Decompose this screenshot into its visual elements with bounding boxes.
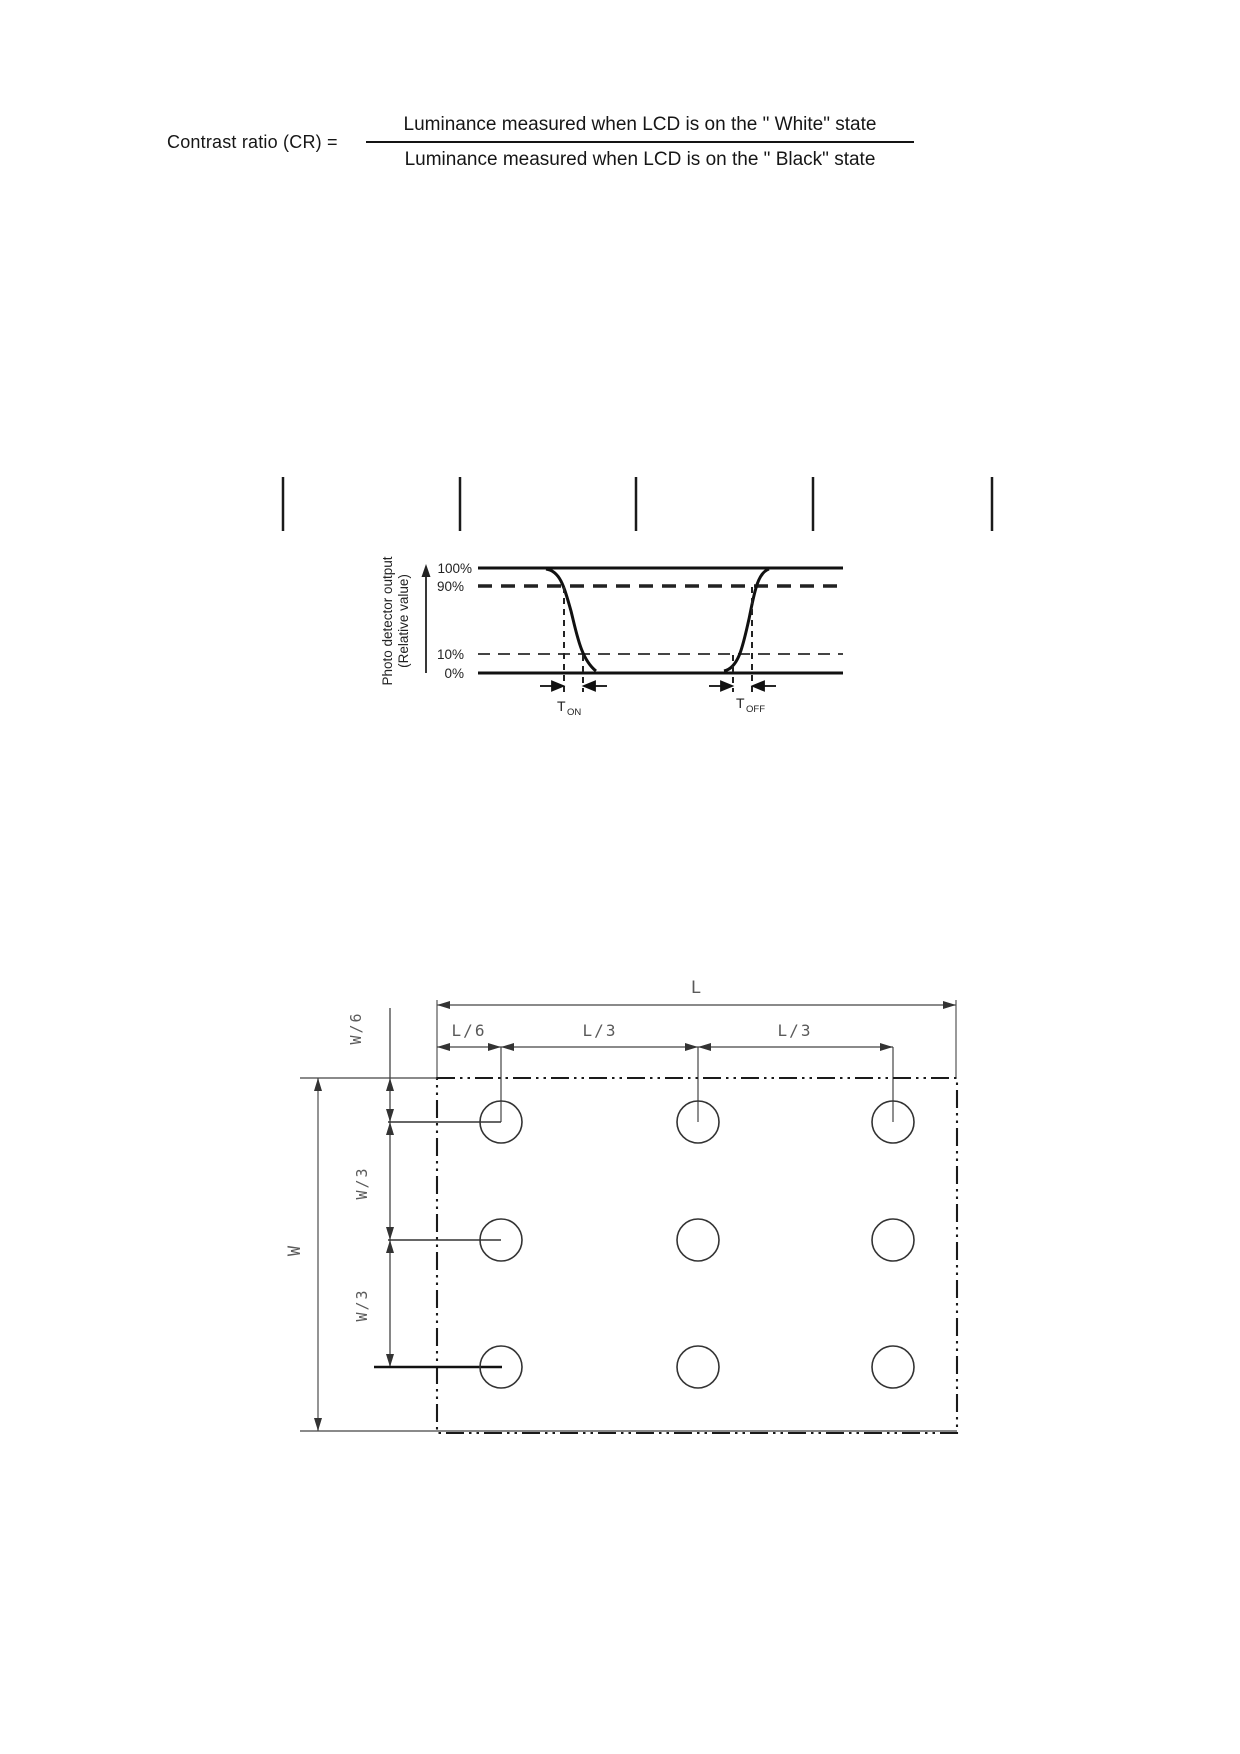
line-art-canvas: Photo detector output (Relative value) 1… [0, 0, 1240, 1754]
dim-label-L: L [691, 978, 703, 998]
seg-arrowhead-icon [437, 1043, 450, 1051]
dim-label-L3-left: L/3 [583, 1021, 618, 1040]
wseg-arrowhead-icon [386, 1078, 394, 1091]
seg-arrowhead-icon [880, 1043, 893, 1051]
measurement-point [872, 1219, 914, 1261]
document-page: Contrast ratio (CR) = Luminance measured… [0, 0, 1240, 1754]
t-off-label: T [736, 695, 745, 711]
t-on-left-arrowhead-icon [552, 682, 563, 691]
y-axis-label-line1: Photo detector output [380, 556, 395, 685]
t-on-right-arrowhead-icon [584, 682, 595, 691]
dim-W-top-arrowhead-icon [314, 1078, 322, 1091]
seg-arrowhead-icon [488, 1043, 501, 1051]
measurement-point [677, 1346, 719, 1388]
seg-arrowhead-icon [685, 1043, 698, 1051]
level-label-90: 90% [437, 579, 464, 594]
wseg-arrowhead-icon [386, 1109, 394, 1122]
measurement-points-grid [480, 1101, 914, 1388]
response-time-graph: Photo detector output (Relative value) 1… [380, 556, 843, 718]
dim-label-W3-upper: W/3 [353, 1166, 371, 1199]
wseg-arrowhead-icon [386, 1227, 394, 1240]
y-axis-label-line2: (Relative value) [396, 574, 411, 668]
dim-L-left-arrowhead-icon [437, 1001, 450, 1009]
y-axis-arrowhead-icon [422, 564, 431, 577]
level-label-10: 10% [437, 647, 464, 662]
dim-label-L6: L/6 [452, 1021, 487, 1040]
level-label-100: 100% [437, 561, 472, 576]
t-on-label: T [557, 698, 566, 714]
table-column-ticks [283, 477, 992, 531]
dim-label-W: W [285, 1244, 305, 1256]
t-off-right-arrowhead-icon [753, 682, 764, 691]
dim-L-right-arrowhead-icon [943, 1001, 956, 1009]
seg-arrowhead-icon [698, 1043, 711, 1051]
dim-label-W6: W/6 [347, 1011, 365, 1044]
dim-W-bottom-arrowhead-icon [314, 1418, 322, 1431]
measurement-point-diagram: L L/6 L/3 L/3 W [285, 978, 957, 1433]
t-on-subscript: ON [567, 707, 581, 718]
t-off-left-arrowhead-icon [721, 682, 732, 691]
wseg-arrowhead-icon [386, 1240, 394, 1253]
measurement-point [872, 1346, 914, 1388]
measurement-point [677, 1219, 719, 1261]
dim-label-L3-right: L/3 [778, 1021, 813, 1040]
wseg-arrowhead-icon [386, 1122, 394, 1135]
wseg-arrowhead-icon [386, 1354, 394, 1367]
dim-label-W3-lower: W/3 [353, 1288, 371, 1321]
seg-arrowhead-icon [501, 1043, 514, 1051]
t-off-subscript: OFF [746, 704, 765, 715]
level-label-0: 0% [444, 666, 464, 681]
